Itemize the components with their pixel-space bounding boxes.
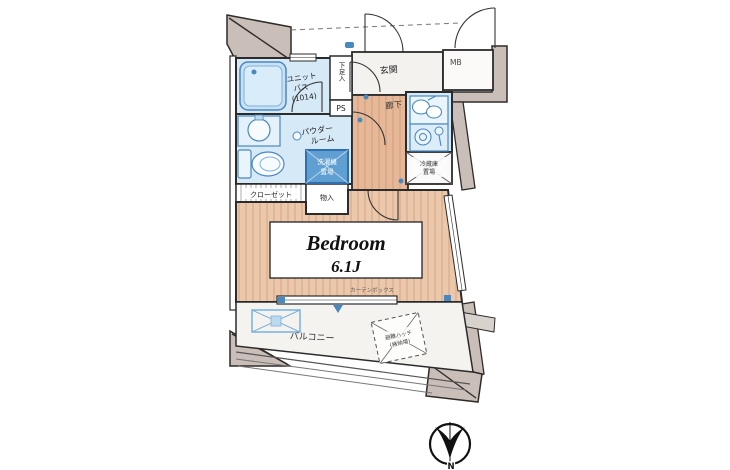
mb-label: MB [450, 58, 462, 67]
storage-label: 物入 [320, 193, 334, 202]
fridge-space [406, 152, 452, 184]
shoe-box-label: 下足入 [337, 62, 345, 82]
floorplan-page: 避難ハッチ (格納場) ユニット バス (1014) 下足入 PS 玄関 MB … [0, 0, 730, 470]
compass-north-label: N [447, 462, 454, 470]
bedroom-name-label: Bedroom [305, 231, 385, 255]
kitchen-sink [410, 96, 448, 124]
washer-line1: 洗濯機 [317, 157, 337, 166]
washer-line2: 置場 [321, 167, 335, 176]
bath-window [290, 54, 316, 61]
floorplan-drawing: 避難ハッチ (格納場) ユニット バス (1014) 下足入 PS 玄関 MB … [0, 0, 730, 470]
bathtub [240, 62, 286, 110]
fridge-line2: 置場 [423, 168, 435, 176]
stool-icon [293, 132, 301, 140]
washbasin [238, 115, 280, 146]
bedroom-label-box: Bedroom 6.1J [270, 222, 422, 278]
washer-space [306, 150, 348, 183]
ps-label: PS [336, 104, 346, 113]
bedroom-size-label: 6.1J [331, 257, 361, 276]
kitchen-stove [410, 124, 448, 151]
curtain-box-label: カーテンボックス [350, 286, 394, 294]
meter-box [443, 50, 493, 90]
hallway-label: 廊下 [385, 99, 404, 112]
bedroom-south-window [277, 296, 397, 304]
toilet [238, 150, 284, 178]
closet-label: クローゼット [250, 190, 292, 199]
fridge-line1: 冷蔵庫 [420, 160, 438, 168]
compass: N [430, 422, 470, 470]
